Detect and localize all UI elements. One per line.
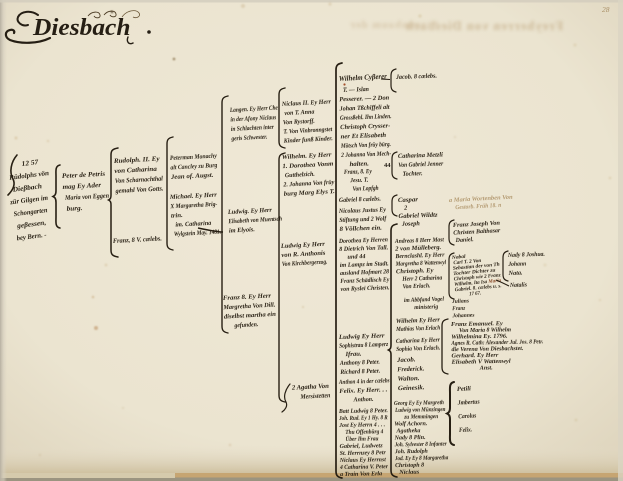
- svg-text:Nata.: Nata.: [507, 269, 523, 277]
- svg-text:Franz, 8. Ey: Franz, 8. Ey: [344, 168, 372, 176]
- svg-text:zu Memmingen: zu Memmingen: [403, 414, 438, 421]
- svg-text:Geinesik.: Geinesik.: [398, 384, 425, 392]
- svg-text:Jod. Ey Ey 8 Margaretha: Jod. Ey Ey 8 Margaretha: [394, 455, 448, 462]
- svg-text:8 Völlchen ein.: 8 Völlchen ein.: [339, 224, 382, 232]
- svg-text:Joh. Rud. Ey 1 Hy. 8 R: Joh. Rud. Ey 1 Hy. 8 R: [338, 415, 388, 422]
- svg-text:Anthony 8 Peter.: Anthony 8 Peter.: [339, 359, 380, 367]
- svg-text:Diesbach: Diesbach: [32, 15, 131, 41]
- svg-text:Daniel.: Daniel.: [455, 236, 475, 244]
- svg-text:Nady 8 Plin.: Nady 8 Plin.: [394, 435, 427, 442]
- svg-text:Ifrau.: Ifrau.: [344, 351, 362, 359]
- svg-text:Gabriel Wildtz: Gabriel Wildtz: [398, 212, 438, 220]
- svg-text:Franz: Franz: [452, 306, 466, 312]
- svg-text:burg.: burg.: [66, 205, 82, 213]
- svg-text:und 44: und 44: [347, 253, 365, 261]
- svg-text:Joh. Sylvester 8 Infanter: Joh. Sylvester 8 Infanter: [394, 441, 447, 448]
- svg-text:Jacob.: Jacob.: [396, 356, 416, 364]
- svg-text:Ludwig von Münzingen: Ludwig von Münzingen: [394, 407, 446, 414]
- svg-text:Gabriel, Ludwetz: Gabriel, Ludwetz: [340, 443, 384, 450]
- svg-text:Jesu. T.: Jesu. T.: [349, 177, 368, 185]
- svg-text:Richard 8 Peter.: Richard 8 Peter.: [339, 368, 380, 376]
- svg-text:Niclaus Ey Herrnst: Niclaus Ey Herrnst: [339, 457, 386, 464]
- svg-text:Felix.: Felix.: [459, 426, 473, 434]
- svg-text:trin.: trin.: [171, 212, 184, 220]
- svg-text:Von Lopfgh: Von Lopfgh: [352, 185, 379, 193]
- svg-text:Wolf Achorn.: Wolf Achorn.: [394, 421, 428, 428]
- svg-text:Jacob. 8 cælebs.: Jacob. 8 cælebs.: [395, 73, 438, 81]
- svg-text:Niclaus: Niclaus: [398, 470, 420, 476]
- svg-text:Walton.: Walton.: [397, 375, 420, 383]
- svg-text:Caspar: Caspar: [398, 196, 419, 204]
- svg-text:Julians: Julians: [451, 298, 470, 305]
- svg-text:Jost Ey Herrn 4 . . .: Jost Ey Herrn 4 . . .: [338, 422, 385, 429]
- svg-text:St. Herrnzey 8 Petr: St. Herrnzey 8 Petr: [340, 450, 387, 457]
- svg-text:Von Erlach.: Von Erlach.: [402, 282, 431, 290]
- svg-text:halten.: halten.: [349, 160, 369, 168]
- svg-text:Gabriel 8 cælebs.: Gabriel 8 cælebs.: [339, 196, 382, 204]
- svg-text:Johannes: Johannes: [451, 313, 475, 320]
- svg-text:Anthon.: Anthon.: [353, 396, 375, 404]
- svg-text:28: 28: [602, 5, 610, 14]
- svg-text:Nady 8 Joshua.: Nady 8 Joshua.: [507, 251, 546, 259]
- svg-text:Thu Offenbürg 4: Thu Offenbürg 4: [345, 429, 383, 436]
- svg-text:Frederick.: Frederick.: [397, 365, 425, 373]
- svg-text:Agatheka: Agatheka: [395, 428, 420, 434]
- svg-text:Tochter.: Tochter.: [402, 170, 423, 178]
- svg-text:4 Catharina V. Peter: 4 Catharina V. Peter: [339, 464, 389, 471]
- svg-text:Stammbaum der: Stammbaum der: [349, 20, 438, 31]
- svg-text:Natalis: Natalis: [509, 281, 528, 289]
- svg-text:ministerig: ministerig: [414, 304, 438, 311]
- svg-text:44: 44: [384, 162, 391, 169]
- svg-text:Anst.: Anst.: [479, 365, 494, 371]
- svg-text:Christoph 8: Christoph 8: [395, 463, 424, 470]
- svg-text:Georg Ey Ey Margreth: Georg Ey Ey Margreth: [394, 400, 445, 407]
- svg-text:Batt Ludwig 8 Peter.: Batt Ludwig 8 Peter.: [338, 408, 388, 415]
- svg-text:im Elyois.: im Elyois.: [229, 226, 256, 234]
- svg-text:gefunden.: gefunden.: [233, 321, 259, 329]
- svg-text:Jmbertus: Jmbertus: [457, 399, 481, 407]
- svg-text:Joseph: Joseph: [401, 220, 421, 228]
- svg-text:T. — Islan: T. — Islan: [343, 86, 370, 94]
- svg-text:17 67.: 17 67.: [469, 290, 481, 297]
- svg-text:Herr 2 Catharina: Herr 2 Catharina: [401, 274, 442, 282]
- svg-text:Johann: Johann: [507, 260, 527, 268]
- svg-text:Carolus: Carolus: [458, 412, 477, 420]
- svg-text:Petili: Petili: [457, 385, 472, 393]
- svg-text:Joh. Rudolph: Joh. Rudolph: [394, 449, 429, 456]
- svg-text:a Train Von Erla: a Train Von Erla: [340, 471, 382, 478]
- svg-text:Über Ihn Frau: Über Ihn Frau: [345, 435, 379, 443]
